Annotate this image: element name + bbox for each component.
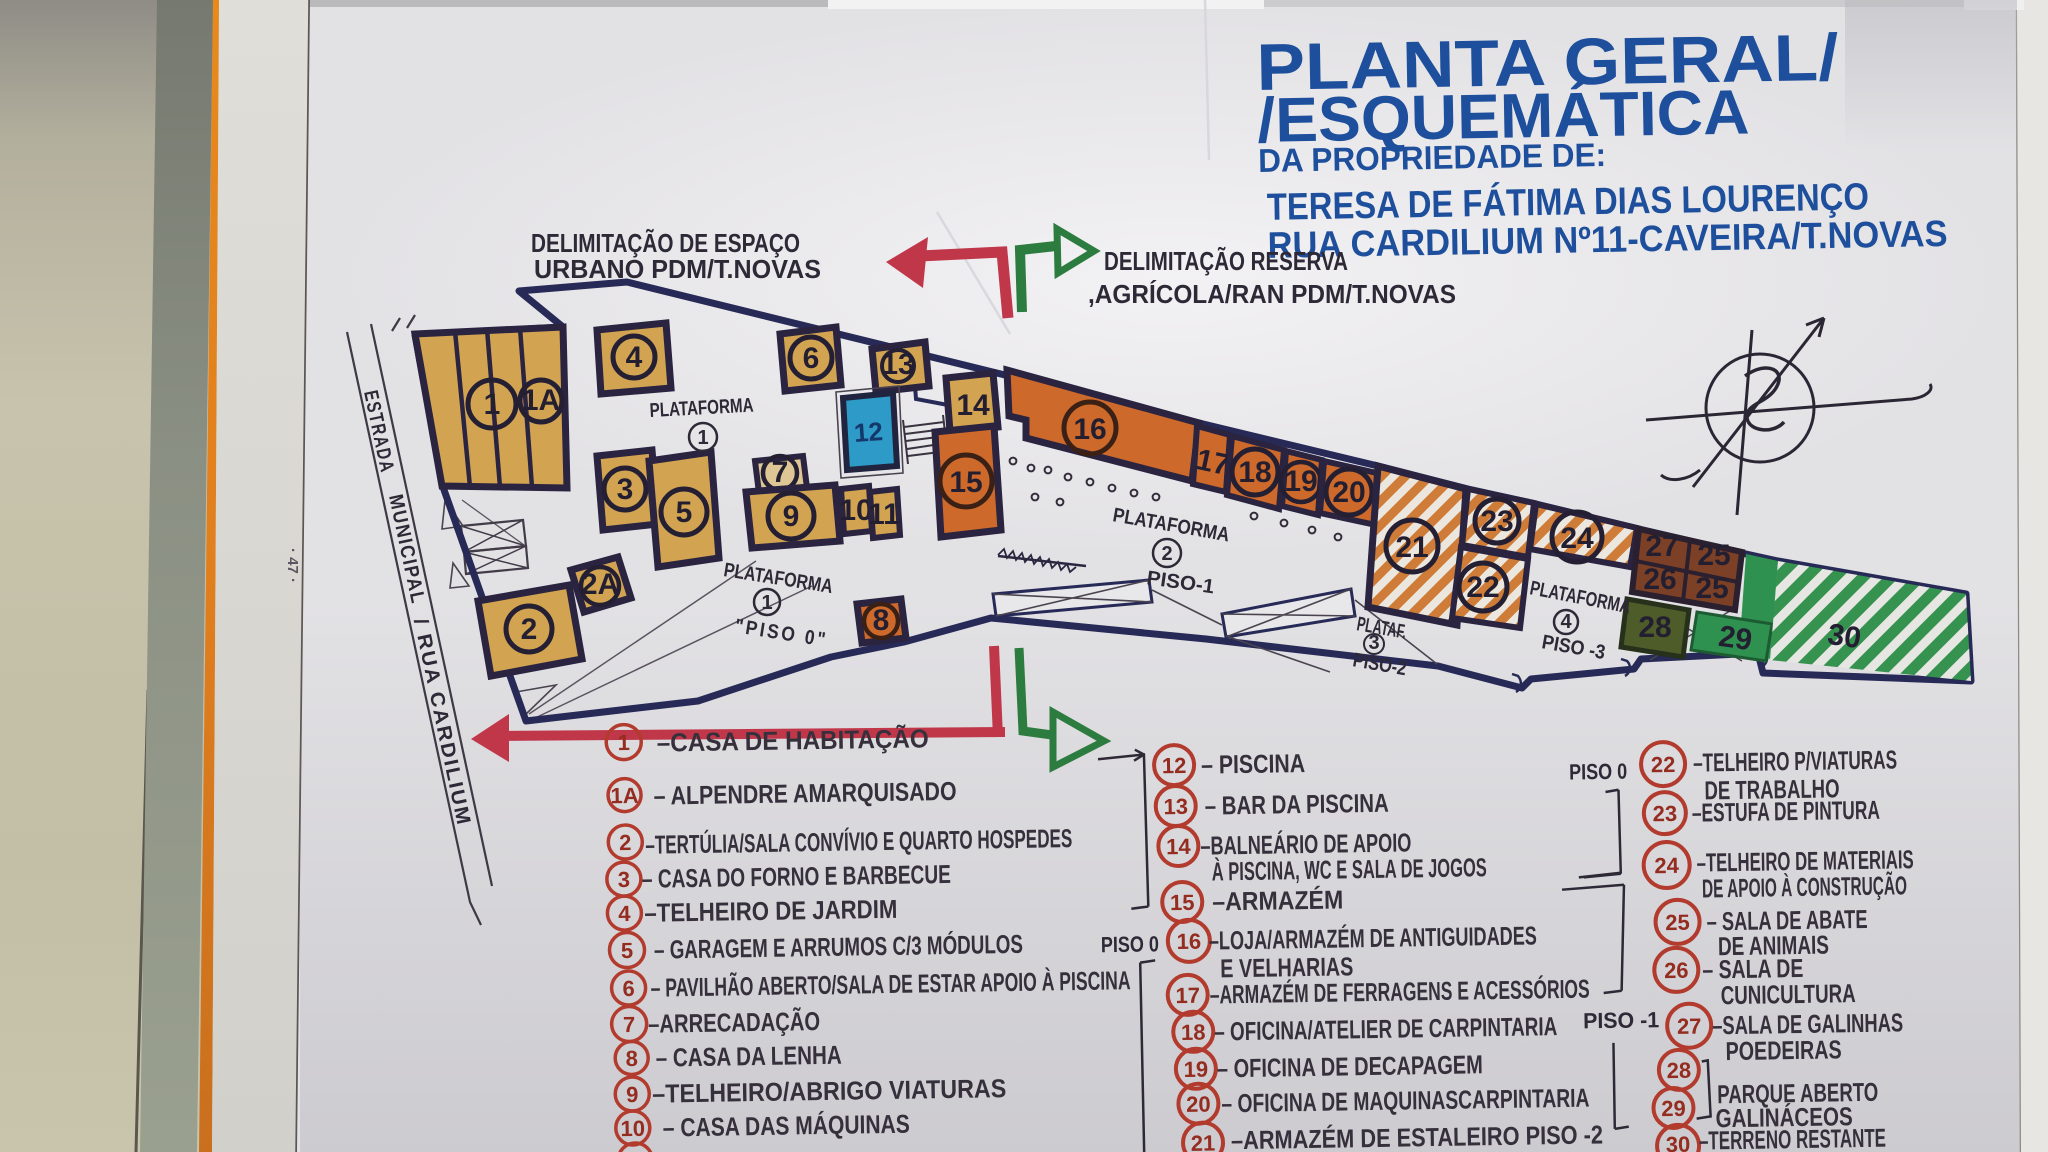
svg-text:–TELHEIRO/ABRIGO VIATURAS: –TELHEIRO/ABRIGO VIATURAS: [652, 1073, 1006, 1109]
svg-text:21: 21: [1191, 1130, 1216, 1152]
svg-text:– OFICINA DE DECAPAGEM: – OFICINA DE DECAPAGEM: [1217, 1049, 1483, 1083]
svg-text:3: 3: [1368, 632, 1379, 654]
svg-text:23: 23: [1480, 505, 1513, 538]
svg-text:28: 28: [1666, 1058, 1691, 1083]
svg-text:27: 27: [1645, 530, 1678, 563]
svg-text:2A: 2A: [581, 568, 619, 601]
svg-text:– PISCINA: – PISCINA: [1201, 748, 1306, 780]
svg-text:22: 22: [1466, 571, 1499, 604]
svg-text:1: 1: [761, 592, 772, 614]
svg-text:PISO 0: PISO 0: [1569, 759, 1627, 785]
svg-text:7: 7: [772, 456, 789, 489]
svg-text:–ARMAZÉM DE ESTALEIRO PISO -2: –ARMAZÉM DE ESTALEIRO PISO -2: [1231, 1119, 1603, 1152]
svg-text:7: 7: [623, 1012, 636, 1037]
svg-text:23: 23: [1652, 801, 1677, 826]
svg-text:2: 2: [619, 830, 632, 855]
svg-text:18: 18: [1181, 1020, 1206, 1045]
svg-text:4: 4: [1560, 611, 1572, 633]
svg-text:–LOJA/ARMAZÉM DE ANTIGUIDADES: –LOJA/ARMAZÉM DE ANTIGUIDADES: [1209, 920, 1537, 955]
svg-text:–ARMAZÉM DE FERRAGENS E ACESSÓ: –ARMAZÉM DE FERRAGENS E ACESSÓRIOS: [1209, 974, 1589, 1010]
svg-text:12: 12: [853, 416, 884, 448]
svg-text:– CASA DA LENHA: – CASA DA LENHA: [655, 1040, 842, 1073]
svg-text:3: 3: [618, 867, 631, 892]
svg-text:–ARRECADAÇÃO: –ARRECADAÇÃO: [648, 1006, 820, 1039]
svg-text:,AGRÍCOLA/RAN PDM/T.NOVAS: ,AGRÍCOLA/RAN PDM/T.NOVAS: [1088, 279, 1456, 309]
svg-text:1: 1: [697, 427, 708, 449]
svg-text:3: 3: [617, 473, 634, 506]
svg-text:18: 18: [1238, 456, 1271, 489]
svg-text:25: 25: [1695, 572, 1728, 605]
svg-text:PISO -1: PISO -1: [1583, 1007, 1659, 1033]
svg-text:24: 24: [1560, 522, 1594, 555]
svg-text:12: 12: [1162, 753, 1187, 778]
svg-text:POEDEIRAS: POEDEIRAS: [1725, 1034, 1841, 1066]
svg-text:4: 4: [626, 341, 643, 374]
svg-text:–TELHEIRO DE JARDIM: –TELHEIRO DE JARDIM: [644, 894, 897, 928]
svg-text:– OFICINA/ATELIER DE CARPINTAR: – OFICINA/ATELIER DE CARPINTARIA: [1214, 1011, 1558, 1046]
svg-text:– CASA DO FORNO E BARBECUE: – CASA DO FORNO E BARBECUE: [642, 859, 951, 894]
svg-text:2: 2: [1161, 543, 1172, 565]
svg-text:– ALPENDRE AMARQUISADO: – ALPENDRE AMARQUISADO: [653, 776, 956, 811]
svg-text:15: 15: [949, 466, 982, 499]
svg-text:25: 25: [1697, 539, 1730, 572]
svg-text:14: 14: [1166, 834, 1192, 859]
svg-text:25: 25: [1665, 910, 1690, 935]
svg-text:1A: 1A: [522, 384, 560, 417]
svg-text:CUNICULTURA: CUNICULTURA: [1720, 978, 1856, 1010]
svg-text:9: 9: [783, 500, 800, 533]
svg-text:–TERRENO RESTANTE: –TERRENO RESTANTE: [1699, 1123, 1886, 1152]
svg-text:9: 9: [626, 1082, 639, 1107]
svg-text:27: 27: [1677, 1014, 1702, 1039]
svg-text:30: 30: [1666, 1132, 1691, 1152]
svg-text:–ARMAZÉM: –ARMAZÉM: [1212, 884, 1343, 916]
svg-text:– BAR DA PISCINA: – BAR DA PISCINA: [1204, 788, 1389, 821]
svg-text:–TELHEIRO P/VIATURAS: –TELHEIRO P/VIATURAS: [1693, 744, 1897, 777]
svg-text:8: 8: [873, 604, 890, 637]
svg-text:16: 16: [1176, 929, 1201, 954]
svg-text:– OFICINA DE MAQUINASCARPINTAR: – OFICINA DE MAQUINASCARPINTARIA: [1221, 1083, 1590, 1119]
svg-text:8: 8: [625, 1046, 638, 1071]
svg-text:PISO 0: PISO 0: [1101, 931, 1159, 957]
svg-text:2: 2: [521, 613, 538, 646]
svg-text:1: 1: [484, 388, 501, 421]
svg-text:À PISCINA, WC E SALA DE JOGOS: À PISCINA, WC E SALA DE JOGOS: [1212, 852, 1487, 886]
svg-text:20: 20: [1332, 476, 1365, 509]
svg-text:30: 30: [1826, 618, 1864, 655]
svg-text:26: 26: [1643, 563, 1676, 596]
svg-text:– GARAGEM E ARRUMOS C/3 MÓDULO: – GARAGEM E ARRUMOS C/3 MÓDULOS: [654, 929, 1023, 965]
svg-text:5: 5: [676, 496, 693, 529]
svg-text:1: 1: [617, 730, 630, 755]
svg-text:14: 14: [956, 389, 990, 422]
svg-text:24: 24: [1654, 853, 1680, 878]
svg-text:5: 5: [621, 938, 634, 963]
svg-text:19: 19: [1284, 465, 1317, 498]
svg-text:DELIMITAÇÃO RESERVA: DELIMITAÇÃO RESERVA: [1104, 246, 1348, 276]
svg-text:17: 17: [1175, 983, 1200, 1008]
svg-text:DE APOIO À CONSTRUÇÃO: DE APOIO À CONSTRUÇÃO: [1702, 870, 1907, 903]
svg-text:6: 6: [622, 976, 635, 1001]
svg-text:19: 19: [1183, 1057, 1208, 1082]
svg-text:–ESTUFA DE PINTURA: –ESTUFA DE PINTURA: [1692, 795, 1881, 828]
svg-text:– CASA DAS MÁQUINAS: – CASA DAS MÁQUINAS: [663, 1109, 910, 1143]
svg-text:29: 29: [1717, 620, 1755, 657]
svg-text:URBANO PDM/T.NOVAS: URBANO PDM/T.NOVAS: [534, 254, 821, 284]
svg-text:11: 11: [868, 498, 900, 531]
svg-text:22: 22: [1651, 752, 1676, 777]
svg-text:13: 13: [1163, 794, 1188, 819]
svg-text:DA PROPRIEDADE DE:: DA PROPRIEDADE DE:: [1258, 136, 1607, 179]
svg-text:28: 28: [1638, 611, 1671, 644]
svg-text:29: 29: [1661, 1096, 1686, 1121]
svg-text:· 47 ·: · 47 ·: [284, 548, 301, 583]
svg-text:21: 21: [1395, 531, 1428, 564]
svg-text:26: 26: [1664, 958, 1689, 983]
svg-text:16: 16: [1073, 413, 1106, 446]
svg-text:6: 6: [803, 342, 820, 375]
svg-text:10: 10: [620, 1116, 645, 1141]
svg-text:20: 20: [1186, 1092, 1211, 1117]
svg-text:13: 13: [881, 348, 914, 381]
svg-text:4: 4: [618, 901, 631, 926]
svg-text:–CASA DE HABITAÇÃO: –CASA DE HABITAÇÃO: [657, 723, 929, 757]
svg-text:15: 15: [1170, 890, 1195, 915]
svg-text:1A: 1A: [610, 783, 639, 808]
